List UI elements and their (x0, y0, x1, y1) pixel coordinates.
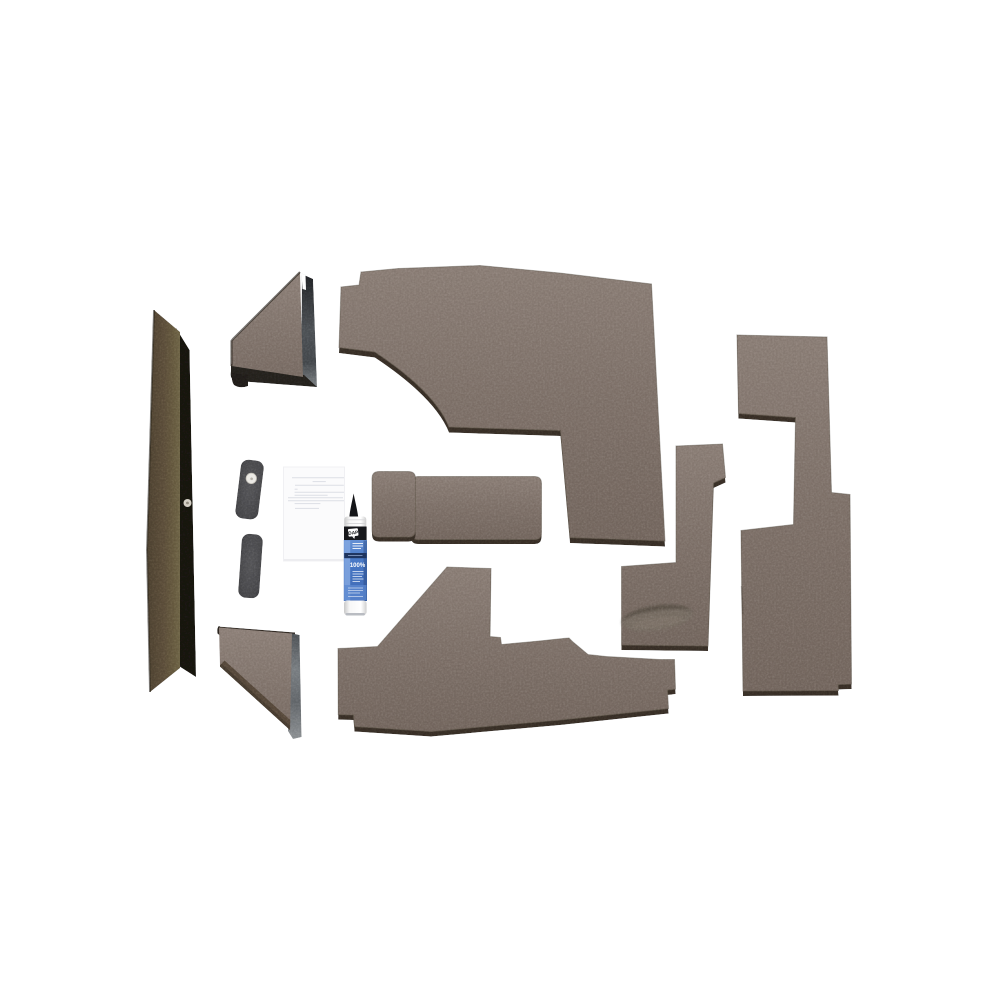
svg-text:DAP: DAP (348, 530, 359, 537)
svg-text:100%: 100% (350, 563, 366, 569)
